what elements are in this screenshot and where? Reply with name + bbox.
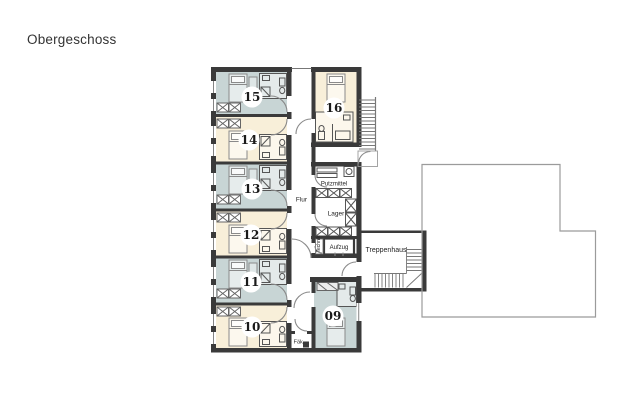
wall-fecal-north	[287, 331, 295, 334]
room-16-badge: 16	[324, 98, 345, 119]
page-title: Obergeschoss	[27, 32, 116, 47]
wall-fecal-north	[307, 331, 312, 334]
crate-icon	[340, 227, 352, 236]
door-room-09	[294, 292, 310, 308]
wall-corridor-east	[312, 307, 316, 348]
wall-south-16	[311, 143, 361, 148]
wall-corridor-west	[287, 206, 292, 213]
wall-corridor-west	[287, 323, 292, 348]
shelf-icon	[317, 168, 337, 172]
shelf-icon	[317, 174, 337, 178]
floor-plan-drawing: Obergeschoss	[0, 0, 633, 400]
wardrobe-icon	[317, 283, 338, 291]
cleaning-room-fixtures	[317, 167, 354, 178]
crate-icon	[346, 199, 357, 212]
svg-text:10: 10	[244, 320, 261, 334]
wardrobe-icon	[217, 195, 229, 204]
wall-south	[211, 348, 362, 353]
roof-outline	[422, 165, 596, 318]
crate-icon	[328, 227, 340, 236]
wall-corridor-west	[287, 229, 292, 284]
wall-north-16	[311, 67, 361, 72]
bathroom-icon	[260, 135, 287, 160]
wardrobe-icon	[229, 195, 241, 204]
svg-text:13: 13	[244, 182, 261, 196]
bathroom-icon	[337, 282, 357, 307]
floor-plan-page: Obergeschoss	[0, 0, 633, 400]
wall-corridor-west	[287, 67, 292, 96]
wardrobe-icon	[229, 307, 241, 316]
wall-stairwell-south	[357, 288, 427, 292]
label-corridor: Flur	[296, 197, 308, 204]
wardrobe-icon	[217, 307, 229, 316]
stairs	[358, 97, 422, 288]
wall-stairwell-north	[362, 231, 427, 234]
wall-divider	[213, 303, 291, 306]
bathroom-icon	[260, 260, 287, 285]
wall-corridor-east	[312, 67, 316, 119]
crate-icon	[340, 189, 352, 198]
svg-text:14: 14	[241, 133, 258, 147]
wall-corridor-east	[312, 187, 316, 214]
svg-text:12: 12	[243, 228, 260, 242]
svg-text:09: 09	[325, 309, 342, 323]
label-storage: Lager	[328, 211, 345, 218]
wall-east-service	[357, 162, 362, 262]
door-stairwell	[342, 262, 356, 276]
wall-corridor-east	[312, 133, 316, 175]
label-elevator: Aufzug	[330, 245, 349, 251]
bathroom-icon	[260, 166, 287, 191]
wardrobe-icon	[217, 213, 229, 222]
room-12-badge: 12	[241, 225, 262, 246]
wardrobe-icon	[229, 289, 241, 298]
crate-icon	[328, 189, 340, 198]
label-cleaning: Putzmittel	[321, 182, 347, 188]
wall-north-service	[311, 162, 361, 167]
wall-divider	[213, 114, 291, 117]
wardrobe-icon	[217, 103, 229, 112]
crate-icon	[316, 189, 328, 198]
room-10-badge: 10	[242, 317, 263, 338]
door-corridor	[292, 239, 311, 258]
crate-icon	[346, 213, 357, 226]
wall-north-09	[310, 277, 362, 282]
label-fecal: Fäk.	[294, 340, 305, 346]
door-room-16	[296, 119, 311, 134]
wall-divider	[213, 209, 291, 212]
wardrobe-icon	[217, 289, 229, 298]
bathroom-icon	[260, 229, 287, 254]
wardrobe-icon	[217, 119, 229, 128]
door-exterior-stair	[359, 152, 371, 164]
label-stairwell: Treppenhaus	[366, 247, 407, 254]
door-fecal	[295, 319, 307, 331]
wall-corridor-west	[287, 112, 292, 119]
wall-divider	[213, 256, 291, 259]
bathroom-icon	[260, 322, 287, 347]
wardrobe-icon	[229, 103, 241, 112]
room-11-badge: 11	[241, 272, 262, 293]
svg-text:11: 11	[243, 275, 260, 289]
crate-icon	[316, 227, 328, 236]
wall-corridor-west	[287, 135, 292, 190]
door-storage	[315, 214, 327, 226]
room-14-badge: 14	[239, 130, 260, 151]
svg-text:15: 15	[244, 90, 261, 104]
wall-east-09	[357, 321, 362, 352]
room-13-badge: 13	[242, 179, 263, 200]
wall-corridor-east	[312, 226, 316, 243]
label-shaft: Technik	[316, 235, 322, 252]
room-09-badge: 09	[323, 306, 344, 327]
wall-corridor-west	[287, 300, 292, 307]
wardrobe-icon	[229, 119, 241, 128]
bathroom-icon	[260, 74, 287, 99]
svg-text:16: 16	[326, 101, 343, 115]
wall-stairwell-east	[422, 231, 427, 292]
wall-north-left-block	[211, 67, 292, 72]
wall-divider	[213, 162, 291, 165]
room-15-badge: 15	[242, 87, 263, 108]
wardrobe-icon	[229, 213, 241, 222]
